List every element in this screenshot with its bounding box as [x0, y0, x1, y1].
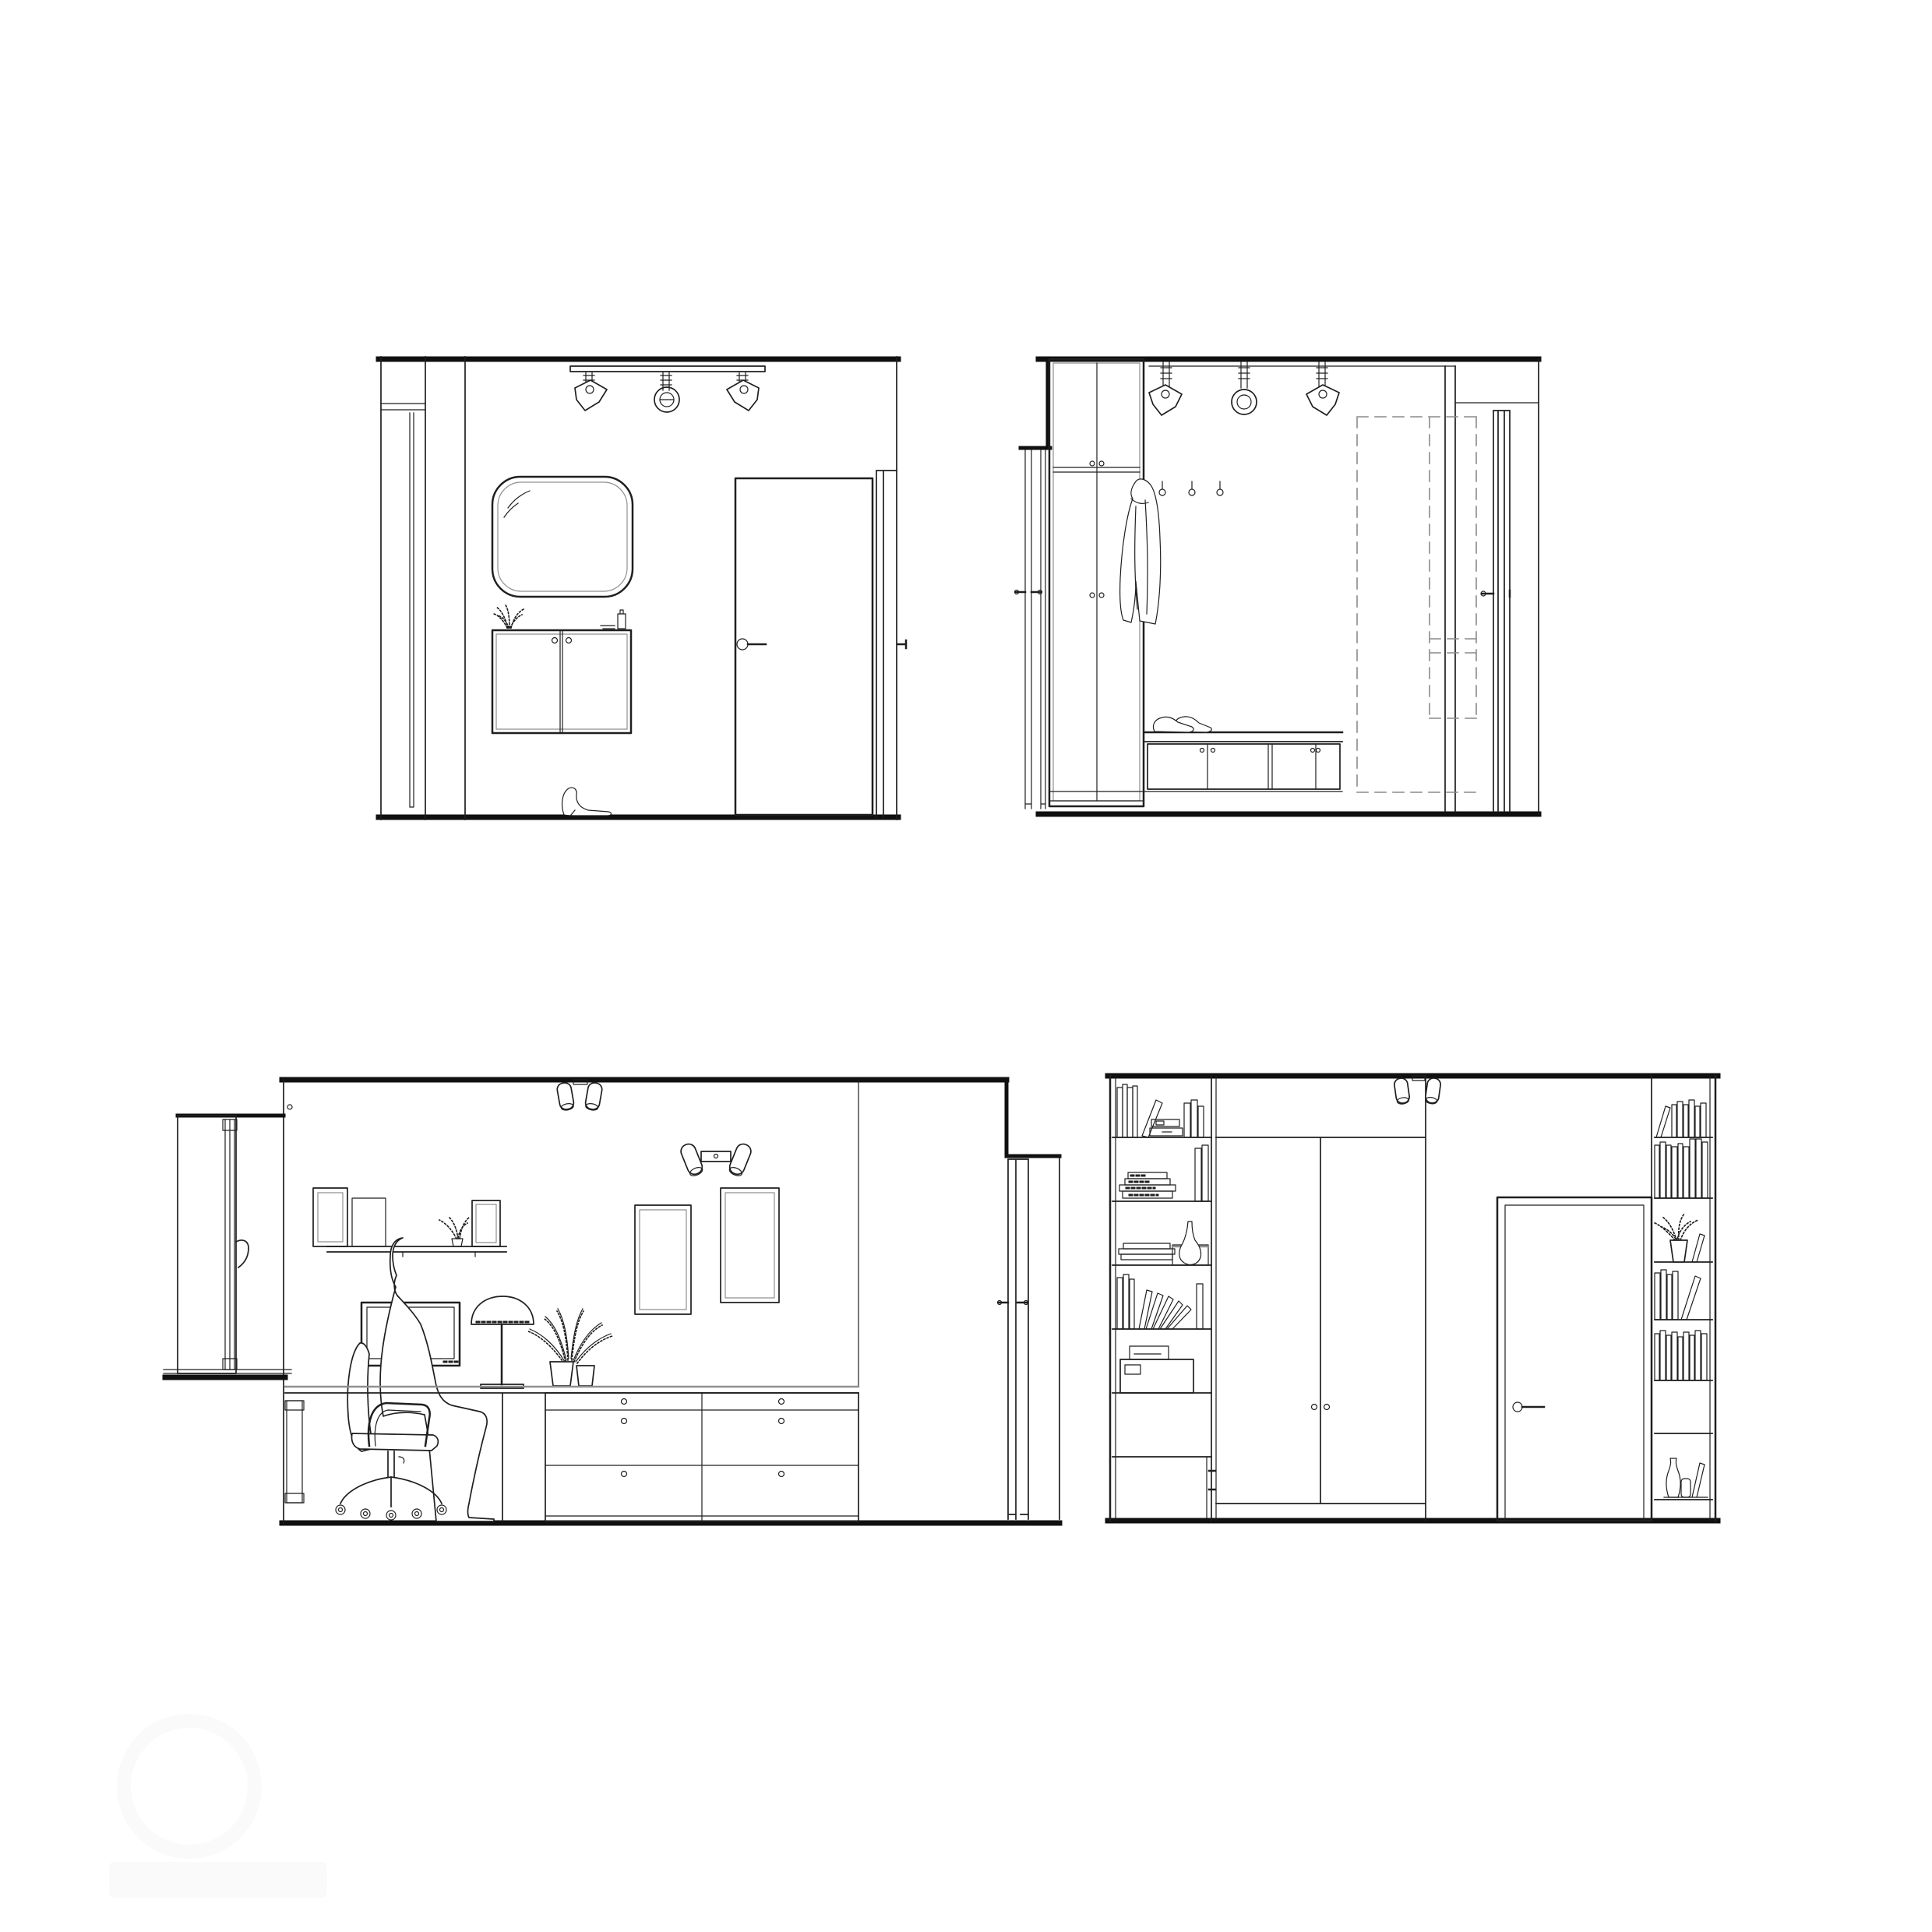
- soffit-cut: [1021, 359, 1050, 448]
- open-door-leaf: [998, 1156, 1060, 1519]
- ceiling-spotlights: [1394, 1076, 1441, 1105]
- bench-knob-icon: [1200, 749, 1204, 753]
- drawer-knob-icon: [779, 1399, 784, 1405]
- wardrobe-knob-icon: [1312, 1405, 1317, 1410]
- wardrobe-knob-icon: [1099, 461, 1104, 466]
- door-handle-icon: [737, 639, 748, 650]
- wardrobe: [1216, 1076, 1426, 1521]
- rounded-square-mirror: [492, 477, 633, 597]
- hook-icon: [1159, 489, 1165, 495]
- door-leaf-edge-right: [1455, 403, 1539, 812]
- plant-pot: [1670, 1240, 1687, 1262]
- wardrobe-knob-icon: [1090, 593, 1095, 598]
- door-handle-icon: [897, 640, 906, 648]
- high-heel-shoe: [562, 788, 612, 816]
- mushroom-table-lamp: [471, 1296, 534, 1388]
- poster-frame: [721, 1188, 779, 1303]
- drawer-knob-icon: [779, 1419, 784, 1424]
- wall-cabinet: [492, 630, 631, 733]
- wardrobe-knob-icon: [1324, 1405, 1330, 1410]
- elevation-top-right: [1015, 359, 1539, 814]
- bench-knob-icon: [1311, 749, 1315, 753]
- coat-hooks: [1159, 481, 1223, 495]
- vase: [1179, 1222, 1201, 1264]
- ceiling-floor-cut-lines: [1108, 1076, 1718, 1521]
- picture-frame: [352, 1198, 386, 1246]
- elevation-sheet: [0, 0, 1932, 1932]
- decorative-vases: [1664, 1458, 1708, 1497]
- storage-boxes: [1119, 1145, 1208, 1201]
- drawer-knob-icon: [622, 1472, 627, 1477]
- cabinet-knob-icon: [552, 638, 558, 643]
- door-handle-icon: [1513, 1402, 1522, 1412]
- wall-shelf: [313, 1188, 506, 1257]
- outer-edges: [1110, 1076, 1715, 1521]
- plant-pot: [550, 1362, 573, 1386]
- hidden-door-dashed: [1357, 417, 1476, 792]
- leaning-books: [1117, 1274, 1203, 1329]
- elevation-top-left: [379, 357, 906, 820]
- chair-column: [388, 1451, 394, 1477]
- bench-knob-icon: [1211, 749, 1215, 753]
- faint-watermark: [109, 1862, 327, 1898]
- wall-spotlight: [679, 1142, 753, 1178]
- elevation-bottom-left: [164, 1080, 1059, 1523]
- ceiling-spotlights: [556, 1080, 603, 1111]
- interior-door: [1497, 1197, 1652, 1521]
- bookcase-right: [1652, 1076, 1712, 1521]
- spotlight-left-icon: [575, 380, 607, 411]
- fern-plant: [528, 1309, 612, 1386]
- spotlight-center-icon: [1232, 390, 1257, 414]
- books: [1655, 1270, 1701, 1320]
- elevations-drawing: [0, 0, 1932, 1932]
- drawer-knob-icon: [622, 1399, 627, 1405]
- open-door-leaf: [876, 471, 906, 817]
- potted-plant: [494, 604, 524, 628]
- drawer-unit: [545, 1393, 858, 1521]
- wall-hook-icon: [287, 1105, 292, 1109]
- desk-counter: [285, 1387, 858, 1521]
- books: [1656, 1100, 1706, 1137]
- bookcase-left: [1112, 1076, 1216, 1521]
- faint-watermark: [117, 1714, 262, 1859]
- potted-plant: [1653, 1214, 1705, 1262]
- hanging-jacket: [1120, 479, 1161, 624]
- shoe-bench: [1049, 732, 1342, 791]
- hook-icon: [1189, 489, 1195, 495]
- window-handle-icon: [236, 1240, 249, 1267]
- vase: [1666, 1458, 1680, 1497]
- shoes-on-bench: [1153, 717, 1211, 732]
- spotlight-right-icon: [1306, 385, 1339, 415]
- shelf-plant: [439, 1217, 469, 1246]
- bench-knob-icon: [1317, 749, 1320, 753]
- ceiling-step-cut: [1007, 1080, 1059, 1156]
- chair-base: [340, 1477, 442, 1507]
- drawer-knob-icon: [779, 1472, 784, 1477]
- poster-frame: [635, 1205, 691, 1314]
- wall-structure: [381, 357, 897, 820]
- ceiling-floor-cut-lines: [1038, 359, 1539, 814]
- spotlight-right-icon: [727, 380, 759, 411]
- wood-slat-panel: [1149, 366, 1455, 812]
- books-and-vase: [1119, 1222, 1208, 1265]
- printer: [1120, 1346, 1193, 1393]
- wardrobe-knob-icon: [1099, 593, 1104, 598]
- vase: [1681, 1479, 1690, 1497]
- books: [1655, 1331, 1707, 1380]
- door-leaf-edge-left: [1015, 450, 1046, 809]
- books: [1117, 1084, 1204, 1137]
- elevation-bottom-right: [1108, 1076, 1718, 1521]
- books: [1655, 1139, 1708, 1198]
- cosmetics: [601, 610, 626, 629]
- cabinet-knob-icon: [566, 638, 572, 643]
- ceiling-spotlight-track: [570, 366, 765, 412]
- drawer-knob-icon: [622, 1419, 627, 1424]
- window-door: [164, 1105, 292, 1377]
- radiator: [285, 1401, 304, 1503]
- ceiling-spotlights: [1149, 362, 1339, 415]
- interior-door: [735, 478, 873, 815]
- ceiling-floor-cut-lines: [379, 359, 898, 817]
- plant-pot: [576, 1366, 594, 1386]
- spotlight-left-icon: [1149, 385, 1182, 415]
- hook-icon: [1217, 489, 1223, 495]
- wardrobe-knob-icon: [1090, 461, 1095, 466]
- person-silhouette: [380, 1238, 494, 1521]
